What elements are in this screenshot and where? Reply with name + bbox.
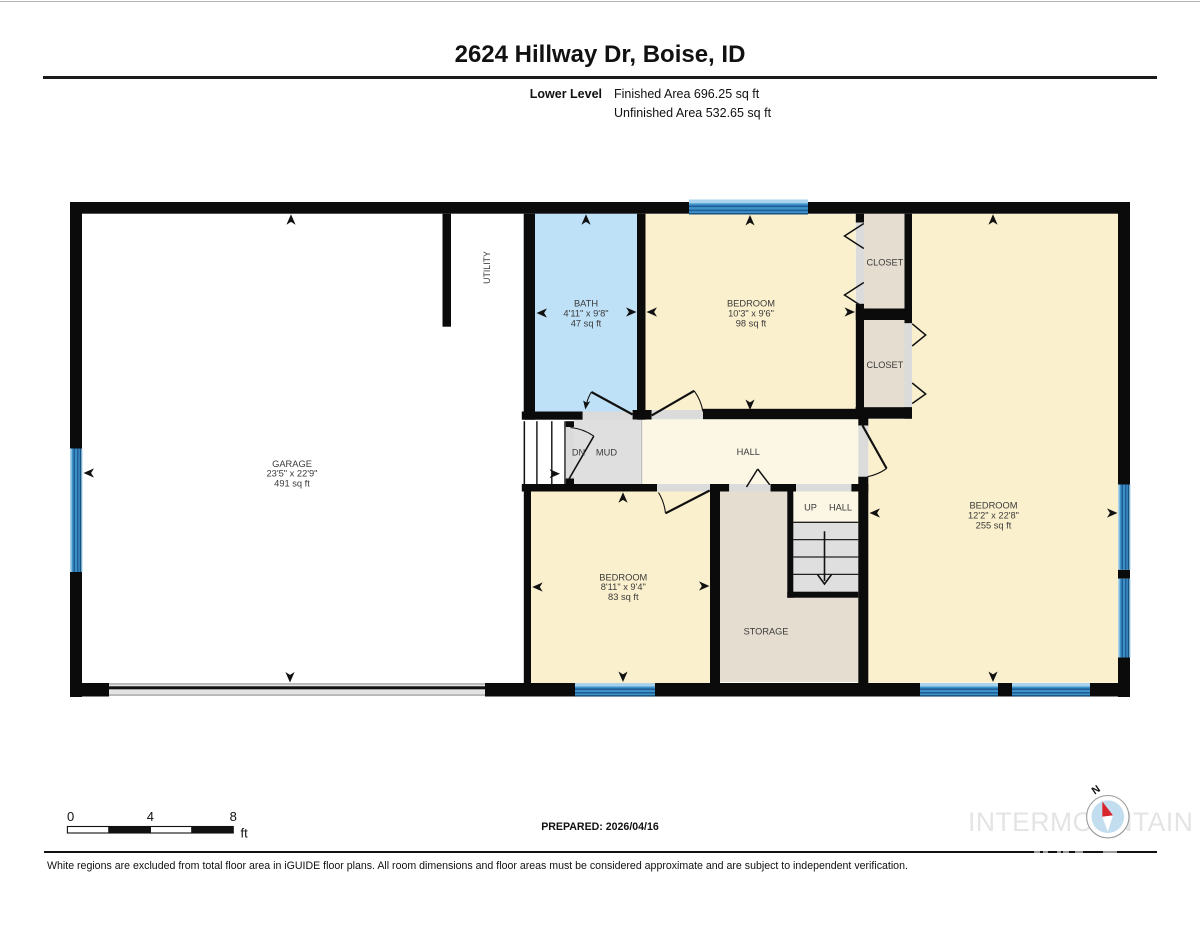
svg-text:4'11" x 9'8": 4'11" x 9'8" [563,309,608,319]
svg-text:98 sq ft: 98 sq ft [736,319,767,329]
svg-text:BEDROOM: BEDROOM [727,299,775,309]
svg-text:491 sq ft: 491 sq ft [274,478,310,488]
svg-text:N: N [1090,783,1103,797]
svg-text:12'2" x 22'8": 12'2" x 22'8" [968,510,1019,520]
svg-text:MUD: MUD [596,447,617,457]
svg-text:23'5" x 22'9": 23'5" x 22'9" [267,469,318,479]
svg-text:10'3" x 9'6": 10'3" x 9'6" [728,309,774,319]
svg-text:255 sq ft: 255 sq ft [976,520,1012,530]
svg-text:DN: DN [572,448,585,458]
svg-text:CLOSET: CLOSET [867,258,904,268]
svg-text:UP: UP [804,503,817,513]
svg-text:BEDROOM: BEDROOM [599,572,647,582]
svg-text:CLOSET: CLOSET [867,360,904,370]
svg-text:8'11" x 9'4": 8'11" x 9'4" [601,582,646,592]
svg-text:UTILITY: UTILITY [482,251,492,284]
svg-text:HALL: HALL [737,447,760,457]
svg-text:BATH: BATH [574,299,598,309]
svg-text:STORAGE: STORAGE [744,627,789,637]
svg-text:47 sq ft: 47 sq ft [571,319,602,329]
svg-text:BEDROOM: BEDROOM [969,501,1017,511]
svg-text:GARAGE: GARAGE [272,459,312,469]
svg-text:HALL: HALL [829,503,852,513]
svg-text:83 sq ft: 83 sq ft [608,592,639,602]
